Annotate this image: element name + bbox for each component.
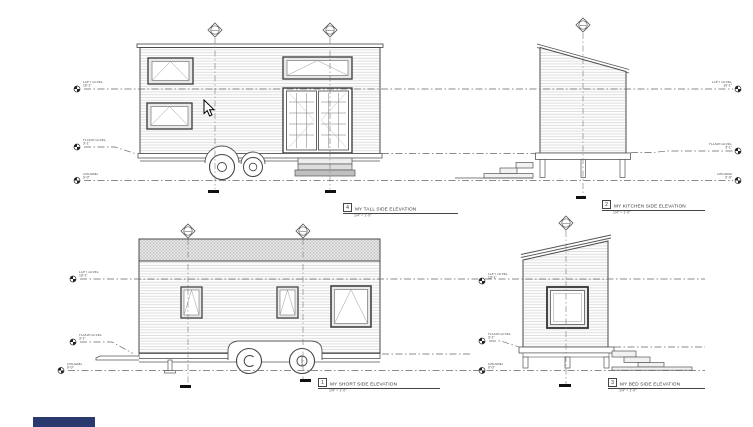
view-scale-text: 1/4" = 1'-0"	[613, 211, 668, 215]
large-window	[331, 286, 371, 327]
view-title-bed: 3MY BED SIDE ELEVATION 1/4" = 1'-0"	[608, 378, 705, 395]
roof-plane	[139, 239, 380, 261]
accent-bar	[33, 417, 95, 427]
view-number-badge: 4	[343, 203, 352, 212]
level-label-ground: GROUND0'-0"	[83, 173, 98, 180]
drawing-sheet: LOFT LEVEL10'-1" FLOOR LEVEL3'-1" GROUND…	[0, 0, 753, 427]
side-steps	[455, 163, 533, 179]
view-title-text: MY TALL SIDE ELEVATION	[355, 207, 416, 212]
view-title-text: MY SHORT SIDE ELEVATION	[330, 382, 397, 387]
tongue-jack	[168, 360, 172, 371]
mid-window	[147, 103, 192, 129]
level-label-ground: GROUND0'-0"	[488, 363, 503, 370]
view-title-tall: 4MY TALL SIDE ELEVATION 1/4" = 1'-0"	[343, 203, 458, 220]
view-title-text: MY BED SIDE ELEVATION	[620, 382, 680, 387]
view-scale-text: 1/4" = 1'-0"	[329, 389, 396, 393]
short-side-elevation	[96, 239, 380, 374]
floor-level-jog-left-top	[84, 147, 135, 154]
view-title-text: MY KITCHEN SIDE ELEVATION	[614, 204, 686, 209]
view-number-badge: 2	[602, 200, 611, 209]
view-scale-text: 1/4" = 1'-0"	[354, 214, 416, 218]
mouse-cursor-icon	[203, 99, 215, 117]
view-number-badge: 3	[608, 378, 617, 387]
level-label-ground: GROUND0'-0"	[682, 173, 732, 180]
loft-window	[148, 58, 193, 84]
trailer	[519, 347, 614, 368]
entry-steps	[295, 158, 355, 176]
tall-side-elevation	[137, 44, 383, 180]
narrow-window-2	[277, 287, 298, 318]
floor-level-jog-right-top	[631, 151, 733, 153]
roof-fascia	[137, 44, 383, 48]
level-label-loft: LOFT LEVEL10'-1"	[682, 81, 732, 88]
kitchen-side-elevation	[455, 44, 631, 178]
level-label-loft: LOFT LEVEL10'-1"	[488, 273, 508, 280]
level-label-ground: GROUND0'-0"	[67, 363, 82, 370]
floor-level-jog-left-bottom	[80, 342, 133, 354]
level-label-floor: FLOOR LEVEL3'-1"	[79, 334, 102, 341]
level-label-floor: FLOOR LEVEL3'-1"	[488, 333, 511, 340]
marker-circle	[74, 86, 80, 92]
level-label-floor: FLOOR LEVEL3'-1"	[83, 139, 106, 146]
french-door	[283, 88, 352, 153]
floor-level-jog-br	[489, 341, 519, 347]
view-title-short: 1MY SHORT SIDE ELEVATION 1/4" = 1'-0"	[318, 378, 440, 395]
wheel	[237, 349, 262, 374]
view-scale-text: 1/4" = 1'-0"	[619, 389, 671, 393]
transom-window	[283, 57, 352, 79]
level-label-floor: FLOOR LEVEL3'-1"	[682, 143, 732, 150]
view-number-badge: 1	[318, 378, 327, 387]
level-label-loft: LOFT LEVEL10'-1"	[83, 81, 103, 88]
trailer-tongue	[96, 356, 139, 360]
bed-side-elevation	[519, 235, 692, 370]
view-title-kitchen: 2MY KITCHEN SIDE ELEVATION 1/4" = 1'-0"	[602, 200, 705, 217]
narrow-window-1	[181, 287, 202, 318]
square-window	[547, 287, 588, 328]
wheel	[210, 155, 235, 180]
wheel-2	[244, 158, 263, 177]
side-steps	[612, 351, 692, 370]
level-label-loft: LOFT LEVEL10'-1"	[79, 271, 99, 278]
